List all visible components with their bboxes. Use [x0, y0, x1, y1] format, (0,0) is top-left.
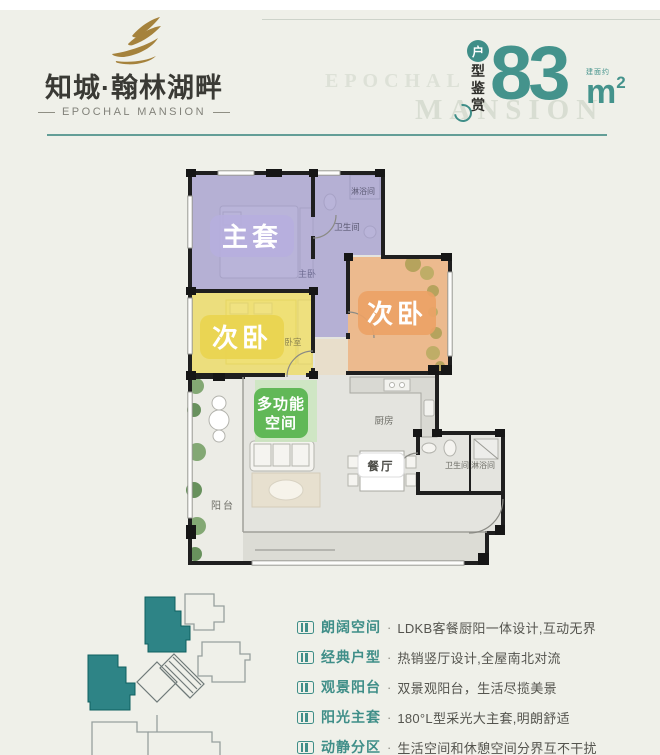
small-kitchen: 厨房 — [374, 415, 393, 427]
dining-chair — [406, 474, 416, 486]
brand-title: 知城·翰林湖畔 — [18, 66, 250, 105]
area-unit-sup: 2 — [616, 73, 625, 93]
door-panel-icon — [297, 651, 314, 664]
small-shower-low: 淋浴间 — [471, 460, 495, 470]
door-panel-icon — [297, 741, 314, 754]
label-master: 主套 — [222, 222, 282, 252]
label-multi-line1: 多功能 — [257, 395, 305, 413]
small-bedroom: 卧室 — [284, 337, 302, 347]
balcony-chair — [212, 396, 226, 410]
feature-label: 观景阳台 — [321, 677, 381, 697]
small-bath-top: 卫生间 — [334, 222, 360, 232]
label-bed-right: 次卧 — [367, 299, 427, 329]
door-panel-icon — [297, 711, 314, 724]
subtitle-dash-left — [38, 112, 55, 113]
label-bed-left: 次卧 — [212, 323, 272, 353]
feature-text: 生活空间和休憩空间分界互不干扰 — [397, 738, 597, 755]
balcony-table — [209, 410, 229, 430]
feature-item: 经典户型 · 热销竖厅设计,全屋南北对流 — [297, 642, 659, 672]
feature-item: 阳光主套 · 180°L型采光大主套,明朗舒适 — [297, 702, 659, 732]
area-unit-m: m — [586, 77, 616, 108]
kitchen-sink — [424, 400, 434, 416]
feature-item: 动静分区 · 生活空间和休憩空间分界互不干扰 — [297, 732, 659, 755]
sink-low — [422, 443, 436, 453]
site-core — [137, 654, 204, 702]
door-panel-icon — [297, 621, 314, 634]
sofa-cushion — [292, 444, 309, 466]
area-value: 83 — [490, 36, 567, 112]
tag-vertical-text: 型 鉴 赏 — [468, 63, 488, 114]
poster-canvas: 知城·翰林湖畔 EPOCHAL MANSION EPOCHAL MANSION … — [0, 10, 660, 755]
small-shower-top: 淋浴间 — [351, 186, 375, 196]
site-key-plan — [62, 582, 288, 755]
feature-item: 朗阔空间 · LDKB客餐厨阳一体设计,互动无界 — [297, 612, 659, 642]
brand-subtitle-row: EPOCHAL MANSION — [18, 106, 250, 118]
stove-burner — [390, 383, 395, 388]
small-bath-low: 卫生间 — [445, 460, 469, 470]
toilet-low — [444, 440, 456, 456]
site-unit-highlight-left — [88, 655, 135, 710]
feature-list: 朗阔空间 · LDKB客餐厨阳一体设计,互动无界 经典户型 · 热销竖厅设计,全… — [297, 612, 659, 755]
header-teal-rule — [47, 134, 607, 136]
brand-subtitle: EPOCHAL MANSION — [62, 106, 206, 118]
small-balcony: 阳台 — [211, 499, 235, 512]
balcony-chair — [213, 430, 225, 442]
feature-text: 双景观阳台，生活尽揽美景 — [397, 678, 557, 697]
feature-text: 180°L型采光大主套,明朗舒适 — [397, 708, 570, 727]
subtitle-dash-right — [213, 112, 230, 113]
feature-label: 经典户型 — [321, 647, 381, 667]
door-panel-icon — [297, 681, 314, 694]
label-dining: 餐厅 — [367, 459, 395, 473]
feature-item: 观景阳台 · 双景观阳台，生活尽揽美景 — [297, 672, 659, 702]
feature-separator: · — [387, 710, 391, 725]
feature-separator: · — [387, 650, 391, 665]
stove-burner — [400, 383, 405, 388]
feature-separator: · — [387, 680, 391, 695]
sofa-cushion — [254, 444, 271, 466]
coffee-table — [269, 480, 303, 500]
poster-page: 知城·翰林湖畔 EPOCHAL MANSION EPOCHAL MANSION … — [0, 0, 660, 755]
feature-label: 阳光主套 — [321, 707, 381, 727]
label-multi-line2: 空间 — [265, 414, 297, 432]
terrace-floor-bottom — [243, 532, 487, 563]
dining-chair — [348, 456, 358, 468]
floor-plan: 主套 次卧 次卧 多功能 空间 餐厅 主卧 淋浴间 卫生间 卧室 厨房 卫生间 … — [170, 160, 510, 590]
sofa-cushion — [273, 444, 290, 466]
tag-char-1: 型 — [468, 63, 488, 80]
tag-char-2: 鉴 — [468, 80, 488, 97]
small-master-bed: 主卧 — [298, 268, 316, 279]
corridor-wood-floor — [315, 339, 348, 375]
tag-circle-hu: 户 — [467, 40, 489, 62]
feature-separator: · — [387, 620, 391, 635]
dining-chair — [406, 456, 416, 468]
area-unit-block: 建面约 m 2 — [586, 67, 626, 108]
feature-text: LDKB客餐厨阳一体设计,互动无界 — [397, 618, 596, 637]
feature-text: 热销竖厅设计,全屋南北对流 — [397, 648, 561, 667]
feature-label: 动静分区 — [321, 737, 381, 755]
feature-label: 朗阔空间 — [321, 617, 381, 637]
site-unit-highlight-top — [145, 597, 190, 652]
feature-separator: · — [387, 740, 391, 755]
dining-chair — [348, 474, 358, 486]
watermark-epochal: EPOCHAL — [325, 70, 466, 93]
top-divider-line — [262, 19, 660, 20]
brand-wing-logo-icon — [102, 14, 166, 66]
stove — [384, 379, 410, 391]
